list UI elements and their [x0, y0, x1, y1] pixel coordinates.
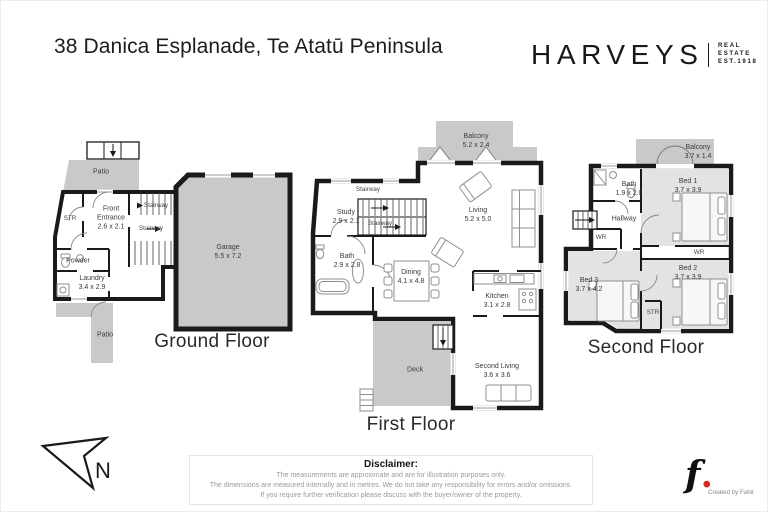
second-floor-title: Second Floor: [588, 337, 705, 359]
disclaimer-line: If you require further verification plea…: [190, 491, 592, 501]
room-label-bath-second: Bath1.9 x 2.0: [616, 180, 643, 198]
disclaimer-heading: Disclaimer:: [190, 459, 592, 470]
room-label-bath-first: Bath2.9 x 2.8: [334, 252, 361, 270]
brand-divider: [708, 43, 710, 67]
brand-tagline: REAL ESTATE EST.1918: [718, 43, 757, 66]
stair-entry: [573, 211, 597, 229]
brand-tagline-line: ESTATE: [718, 51, 757, 59]
room-label-deck: Deck: [407, 365, 423, 374]
room-label-stairway-lower-first: Stairway: [368, 220, 392, 228]
fabit-logo-letter: f: [685, 454, 701, 496]
fabit-credit-text: Created by Fabit: [708, 489, 754, 496]
mini-stairs: [433, 325, 453, 349]
room-label-balcony-second: Balcony3.7 x 1.4: [685, 143, 712, 161]
harveys-logo: HARVEYS REAL ESTATE EST.1918: [531, 39, 757, 71]
room-label-second-living: Second Living3.6 x 3.6: [475, 362, 519, 380]
room-label-stairway-upper: Stairway: [144, 202, 168, 210]
room-label-patio-top: Patio: [93, 167, 109, 176]
room-label-bed3: Bed 33.7 x 4.2: [576, 276, 603, 294]
room-label-hallway: Hallway: [612, 214, 637, 223]
room-label-dining: Dining4.1 x 4.8: [398, 268, 425, 286]
brand-tagline-line: EST.1918: [718, 59, 757, 67]
room-label-study: Study2.9 x 2.1: [333, 208, 360, 226]
room-label-bed2: Bed 23.7 x 3.9: [675, 264, 702, 282]
room-label-stairway-upper-first: Stairway: [356, 186, 380, 194]
room-label-front-entrance: Front Entrance2.6 x 2.1: [89, 204, 133, 231]
room-label-powder: Powder: [66, 256, 90, 265]
room-label-bed1: Bed 13.7 x 3.9: [675, 177, 702, 195]
page-title: 38 Danica Esplanade, Te Atatū Peninsula: [54, 35, 443, 59]
room-label-patio-bottom: Patio: [97, 330, 113, 339]
brand-name: HARVEYS: [531, 39, 704, 71]
room-label-kitchen: Kitchen3.1 x 2.8: [484, 292, 511, 310]
room-label-garage: Garage5.5 x 7.2: [215, 243, 242, 261]
room-label-str-second: STR: [647, 309, 660, 317]
room-label-str: STR: [64, 215, 77, 223]
disclaimer-line: The dimensions are measured internally a…: [190, 481, 592, 491]
room-label-wr-right: WR: [694, 249, 705, 257]
room-label-living: Living5.2 x 5.0: [465, 206, 492, 224]
disclaimer-line: The measurements are approximate and are…: [190, 471, 592, 481]
first-floor-title: First Floor: [367, 414, 456, 436]
first-floor-plan: [313, 113, 548, 438]
entry-steps: [87, 142, 139, 159]
room-label-balcony-first: Balcony5.2 x 2.4: [463, 132, 490, 150]
room-label-wr-left: WR: [596, 234, 607, 242]
room-label-laundry: Laundry3.4 x 2.9: [79, 274, 106, 292]
room-label-stairway-lower: Stairway: [139, 225, 163, 233]
north-compass: N: [31, 426, 126, 501]
compass-letter: N: [95, 458, 111, 483]
deck-steps: [360, 389, 373, 411]
fabit-logo: f.: [685, 457, 713, 493]
floor-plan-page: 38 Danica Esplanade, Te Atatū Peninsula …: [0, 0, 768, 512]
brand-tagline-line: REAL: [718, 43, 757, 51]
ground-floor-title: Ground Floor: [154, 331, 270, 353]
disclaimer-box: Disclaimer: The measurements are approxi…: [189, 455, 593, 505]
